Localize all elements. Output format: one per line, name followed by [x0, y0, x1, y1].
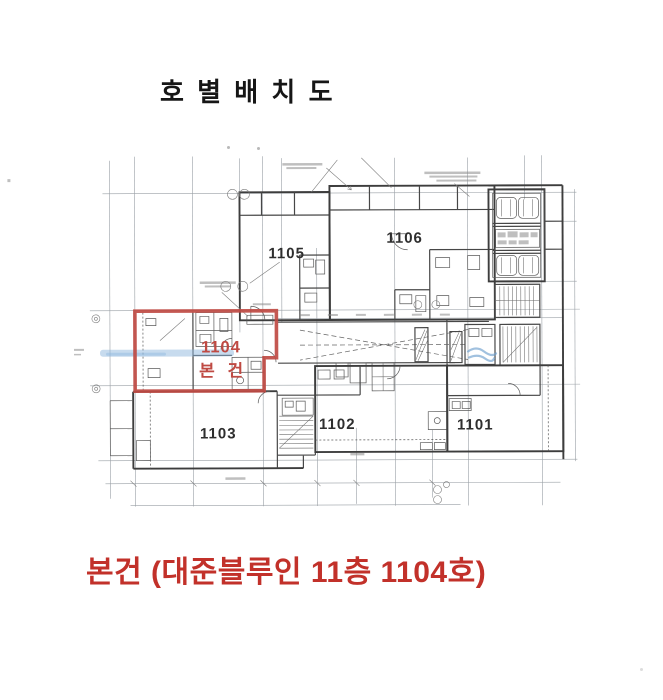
unit-label-1101: 1101 [457, 416, 494, 433]
subject-caption: 본건 (대준블루인 11층 1104호) [86, 547, 486, 591]
unit-label-1103: 1103 [200, 425, 237, 442]
unit-label-1105: 1105 [268, 245, 305, 262]
stairs-upper [495, 284, 540, 317]
lift-machine-scribble [496, 229, 540, 247]
subject-unit-number: 1104 [201, 338, 241, 356]
unit-1102-walls [315, 366, 447, 452]
floor-plan-drawing: 1105 1106 1103 1102 1101 1104 본 건 [0, 0, 663, 700]
elevator-core [465, 324, 496, 364]
unit-label-1102: 1102 [319, 416, 356, 433]
car-icon [497, 255, 539, 275]
unit-1106-walls [329, 185, 494, 320]
unit-1101-walls [447, 365, 563, 451]
unit-label-1106: 1106 [386, 230, 423, 247]
car-icon [496, 197, 538, 218]
subject-unit-marker: 본 건 [199, 361, 247, 380]
grid-lines [89, 155, 580, 507]
stair-core-left [277, 391, 315, 455]
document-page: 호 별 배 치 도 [0, 0, 663, 700]
stairs-lower [500, 324, 540, 365]
car-lift-block [488, 185, 563, 459]
